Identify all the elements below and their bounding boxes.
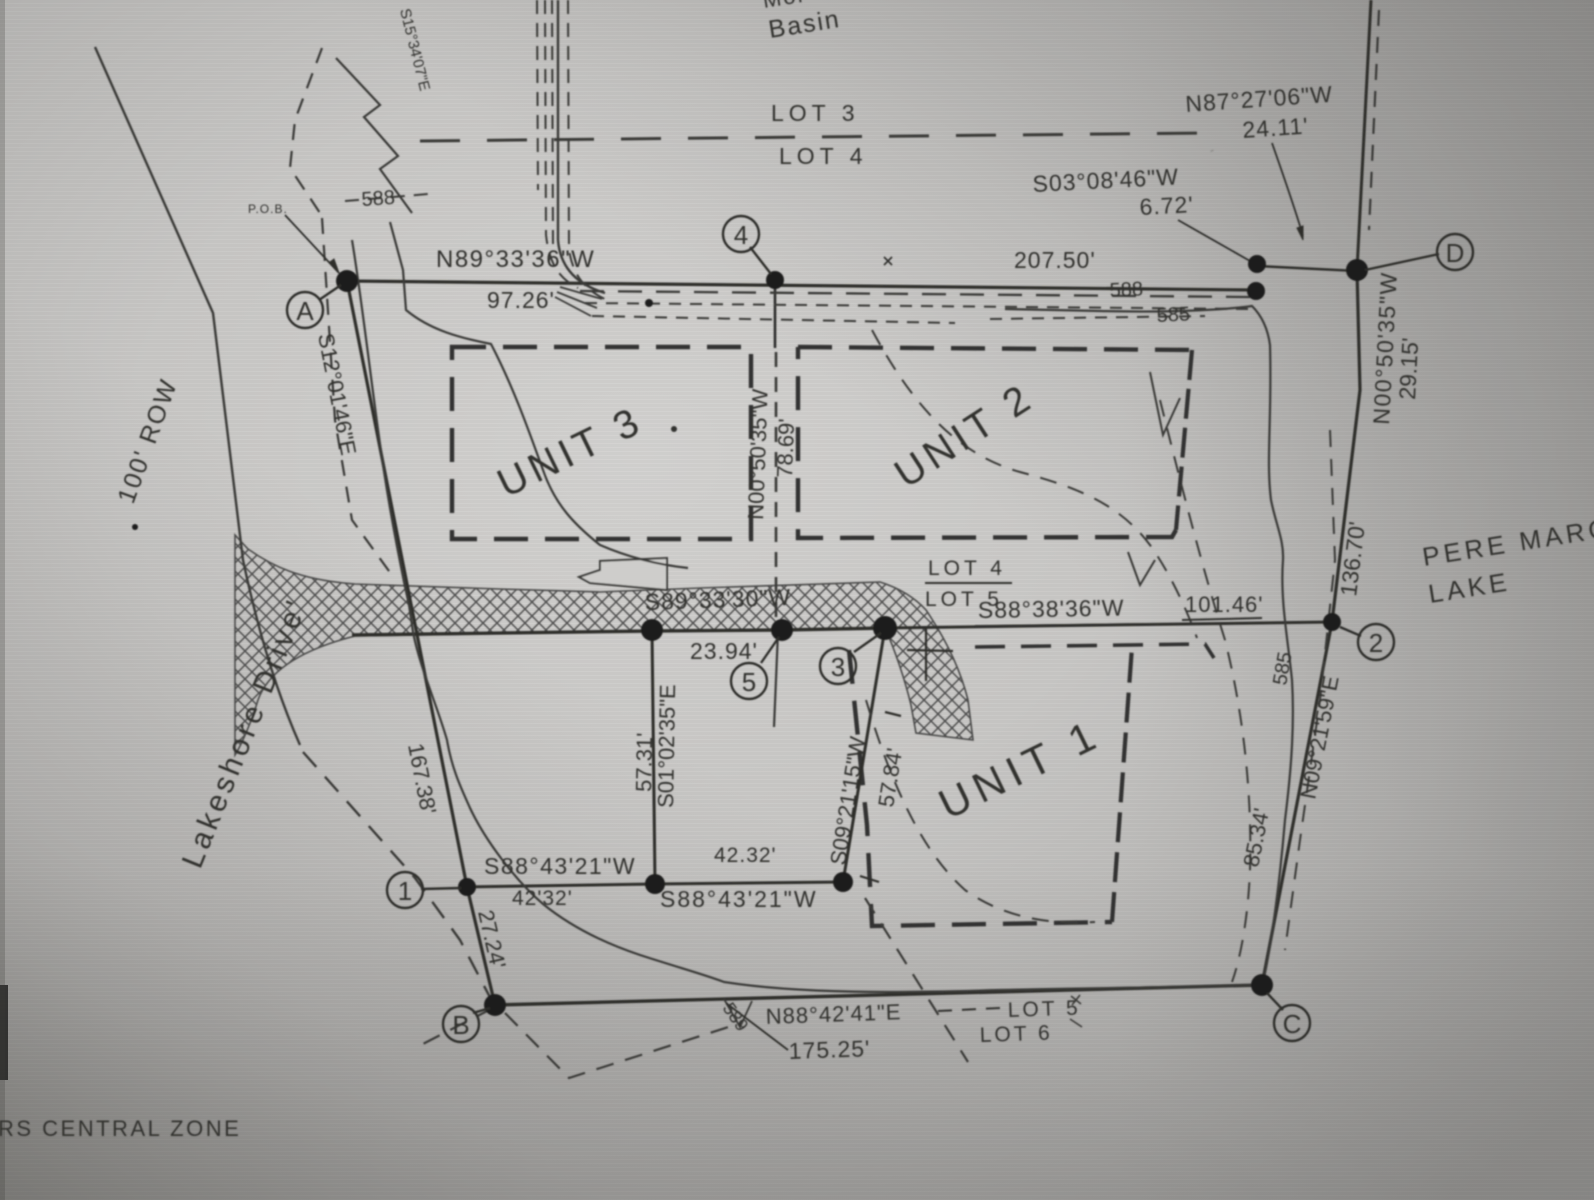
svg-text:B: B bbox=[452, 1010, 469, 1040]
svg-text:S88°43'21"W: S88°43'21"W bbox=[484, 853, 636, 879]
svg-text:42'32': 42'32' bbox=[512, 887, 573, 910]
svg-text:RS CENTRAL ZONE: RS CENTRAL ZONE bbox=[0, 1116, 241, 1141]
svg-text:6.72': 6.72' bbox=[1139, 191, 1194, 220]
svg-text:N88°42'41"E: N88°42'41"E bbox=[765, 999, 902, 1029]
svg-text:78.69': 78.69' bbox=[772, 418, 799, 478]
svg-text:2: 2 bbox=[1369, 628, 1383, 658]
svg-text:LOT 5: LOT 5 bbox=[1007, 996, 1081, 1022]
svg-text:N00°50'35"W: N00°50'35"W bbox=[743, 388, 773, 520]
svg-text:D: D bbox=[1446, 238, 1465, 268]
svg-text:P.O.B.: P.O.B. bbox=[248, 202, 288, 216]
svg-text:N89°33'36"W: N89°33'36"W bbox=[436, 246, 595, 273]
svg-text:29.15': 29.15' bbox=[1394, 337, 1423, 400]
svg-text:LOT 6: LOT 6 bbox=[979, 1021, 1053, 1047]
svg-text:LOT 4: LOT 4 bbox=[928, 557, 1006, 580]
svg-text:5: 5 bbox=[742, 667, 756, 697]
svg-text:1: 1 bbox=[398, 876, 412, 906]
svg-text:97.26': 97.26' bbox=[487, 287, 555, 313]
svg-text:24.11': 24.11' bbox=[1242, 112, 1310, 143]
svg-text:A: A bbox=[296, 296, 314, 326]
svg-text:S88°43'21"W: S88°43'21"W bbox=[660, 886, 818, 912]
svg-text:3: 3 bbox=[831, 652, 845, 682]
svg-text:4: 4 bbox=[734, 220, 748, 250]
svg-text:42.32': 42.32' bbox=[714, 844, 777, 867]
svg-text:588: 588 bbox=[361, 187, 396, 211]
svg-text:S89°33'30"W: S89°33'30"W bbox=[644, 584, 791, 615]
svg-text:S88°38'36"W: S88°38'36"W bbox=[978, 594, 1125, 623]
svg-text:LOT 3: LOT 3 bbox=[771, 100, 860, 126]
svg-text:LOT 4: LOT 4 bbox=[779, 143, 868, 169]
svg-text:101.46': 101.46' bbox=[1185, 592, 1264, 617]
svg-text:C: C bbox=[1283, 1009, 1302, 1039]
svg-text:175.25': 175.25' bbox=[788, 1035, 871, 1064]
svg-text:207.50': 207.50' bbox=[1014, 247, 1096, 273]
svg-text:S01°02'35"E: S01°02'35"E bbox=[653, 684, 680, 808]
svg-text:588: 588 bbox=[1109, 278, 1143, 302]
svg-text:585: 585 bbox=[1156, 303, 1190, 327]
svg-text:23.94': 23.94' bbox=[690, 638, 758, 664]
